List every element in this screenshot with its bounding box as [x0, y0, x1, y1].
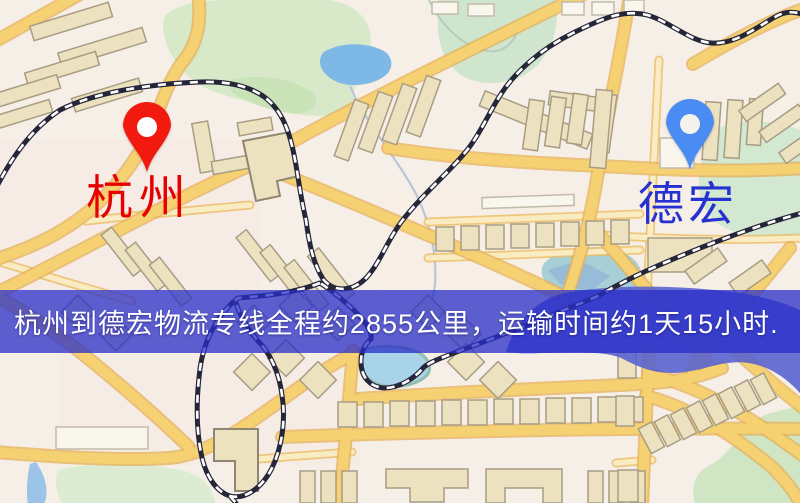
route-info-banner: 杭州到德宏物流专线全程约2855公里，运输时间约1天15小时. — [0, 290, 800, 353]
origin-label: 杭州 — [86, 176, 192, 223]
origin-map-pin-icon[interactable] — [121, 102, 173, 174]
destination-map-pin-icon[interactable] — [664, 99, 716, 171]
logistics-route-map: 杭州 德宏 杭州到德宏物流专线全程约2855公里，运输时间约1天15小时. — [0, 0, 800, 503]
route-info-text: 杭州到德宏物流专线全程约2855公里，运输时间约1天15小时. — [0, 302, 779, 341]
map-canvas[interactable] — [0, 0, 800, 503]
destination-label: 德宏 — [638, 182, 738, 228]
